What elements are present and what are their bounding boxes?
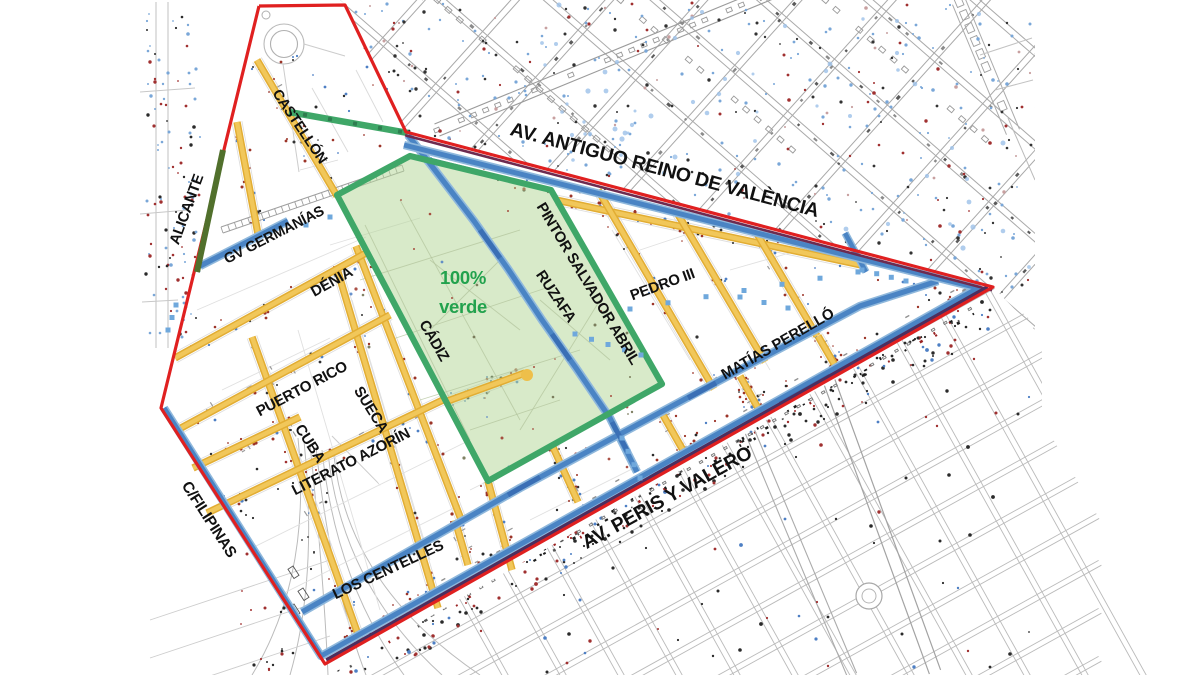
svg-text:verde: verde [439,296,487,317]
svg-text:100%: 100% [440,267,486,288]
